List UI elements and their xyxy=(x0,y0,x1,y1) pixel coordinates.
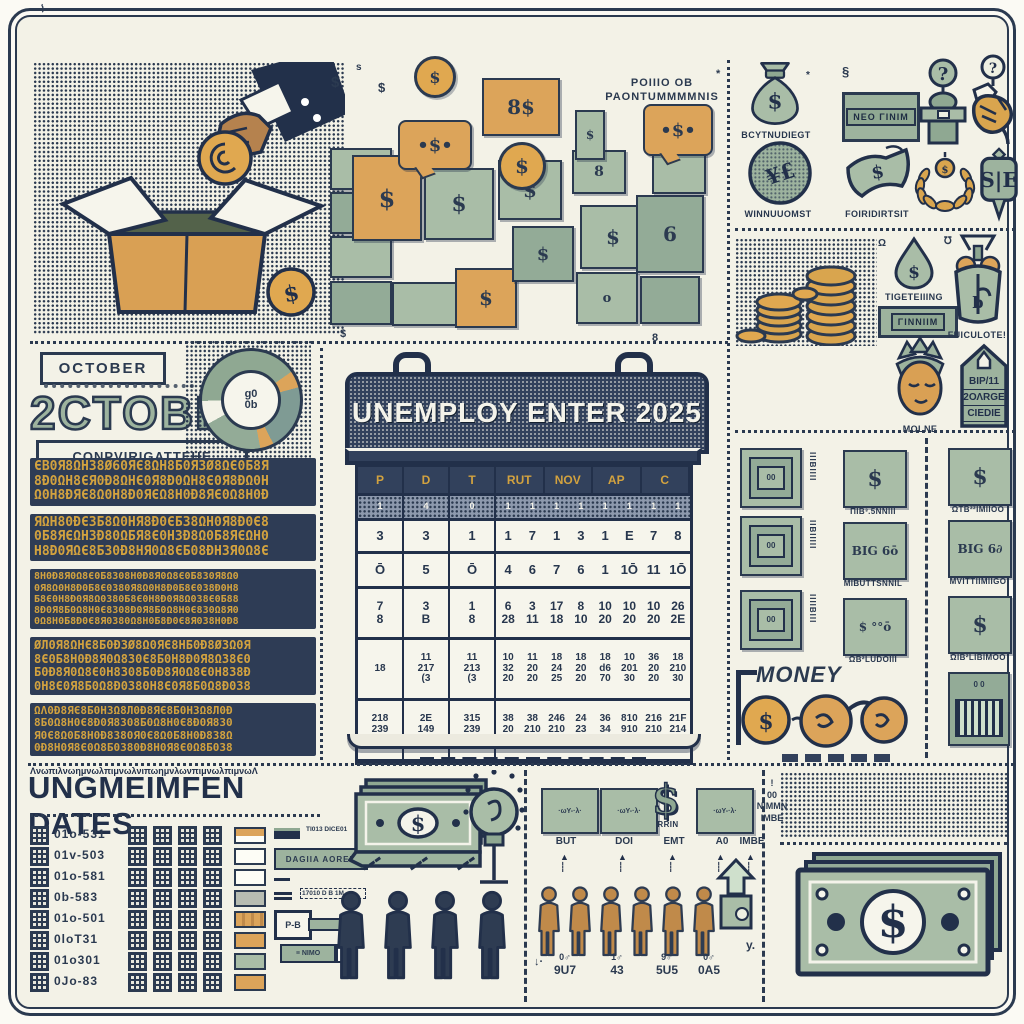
coins-panel xyxy=(735,238,877,346)
calendar-cell: 1020130 xyxy=(617,640,641,698)
lightbulb-icon xyxy=(460,770,526,888)
person-silhouette xyxy=(473,886,511,991)
cal-num: 7 xyxy=(553,563,560,577)
coin-stack-icon xyxy=(735,238,877,346)
dollar-bill-icon: $ xyxy=(786,852,1012,994)
cal-num: 1 xyxy=(505,529,512,543)
legend-swatch xyxy=(234,911,266,928)
calendar-row: 33117131E78 xyxy=(358,521,690,554)
cal-num: Ō xyxy=(375,563,385,577)
cal-num: 4 xyxy=(505,563,512,577)
date-code: 01o-501 xyxy=(54,911,106,925)
separator xyxy=(925,438,928,758)
calendar-row: 218239D2E149D315239D38202038210202462102… xyxy=(358,701,690,762)
qr-block xyxy=(203,973,222,992)
calendar-cell: 103220 xyxy=(496,640,520,698)
cal-num: 3 xyxy=(577,529,584,543)
key-bow: P-B xyxy=(274,910,312,940)
calendar-cell: 1821030 xyxy=(666,640,690,698)
qr-block xyxy=(153,889,172,908)
calendar-cell: 1 xyxy=(666,496,690,518)
calendar-cell: 11217(3 xyxy=(404,640,450,698)
qr-block xyxy=(178,931,197,950)
qr-block xyxy=(30,910,49,929)
qr-block xyxy=(203,826,222,845)
dates-panel: UNGMEIMFEN DATES 01o-53101v-50301o-5810b… xyxy=(28,770,330,1004)
calendar-cell: Ō xyxy=(450,554,496,586)
calendar-cell: 182425 xyxy=(545,640,569,698)
calendar-cell: 262E xyxy=(666,589,690,637)
garbled-row: ØЛ0Я8ΩΗЄ8Б0Ð3Ø8Ω0ЯЄ8ΗБ0Ð8Ø3Ω0Я xyxy=(34,639,312,652)
separator xyxy=(727,60,730,760)
dates-underline xyxy=(30,814,320,817)
garbled-band: ЯΩΗ80ÐЄ3Б8Ω0ΗЯ8Ð0ЄБ38ΩΗ0Я8Ð0Є80Б8ЯЄΩΗ3Ð8… xyxy=(30,514,316,562)
legend-dash xyxy=(274,878,290,881)
calendar-cell: 11213(3 xyxy=(450,640,496,698)
calendar-cell: 21621022 xyxy=(642,701,666,759)
date-code: 01v-503 xyxy=(54,848,105,862)
qr-block xyxy=(203,889,222,908)
qr-block xyxy=(203,910,222,929)
cal-num: 20 xyxy=(503,674,514,685)
calendar-row: Ō5Ō467611Ō111Ō xyxy=(358,554,690,589)
cal-num: 70 xyxy=(600,674,611,685)
cal-num: 3 xyxy=(422,529,429,543)
person-silhouette xyxy=(426,886,464,991)
calendar-cell: 3 xyxy=(404,521,450,551)
cal-num: 8 xyxy=(674,529,681,543)
cal-num: 6 xyxy=(529,563,536,577)
garbled-row: 0Я8Ω0Η8Ð0Б8Є0380Я8Ω0Η8Ð0Б8Є038Ð0Η8 xyxy=(34,583,312,594)
calendar-cell: 0 xyxy=(450,496,496,518)
calendar-cell: 3 xyxy=(358,521,404,551)
cal-num: 11 xyxy=(647,563,661,577)
qr-block xyxy=(153,826,172,845)
calendar-cell: 18d670 xyxy=(593,640,617,698)
calendar-cell: 6 xyxy=(520,554,544,586)
cal-num: (3 xyxy=(422,674,431,685)
calendar-cell: 1020 xyxy=(593,589,617,637)
panel-caption: POIIIO OB PAONTUMMMMNIS xyxy=(592,76,732,105)
calendar-cell: 1 xyxy=(545,521,569,551)
halftone-band-underline xyxy=(780,842,1008,845)
cal-num: B xyxy=(422,613,431,626)
cal-num: 10 xyxy=(574,613,587,626)
calendar-wide-cell: 17131E78 xyxy=(496,521,690,551)
calendar-cell: 6 xyxy=(569,554,593,586)
calendar-cell: 81091022 xyxy=(617,701,641,759)
calendar-cell: 3B xyxy=(404,589,450,637)
calendar-wide-cell: 3820203821020246210222423233634238109102… xyxy=(496,701,690,759)
separator xyxy=(28,763,1014,766)
calendar-header-row: PDTRUTNOVAPC xyxy=(358,467,690,496)
garbled-row: 0Ω8Η0Б8Ð0Є8Я0380Ω8Η0Б8Ð0Є8Я038Η0Ð8 xyxy=(34,616,312,627)
calendar-title: UNEMPLOY ENTER 2025 xyxy=(352,397,702,429)
cal-num: 11 xyxy=(526,613,539,626)
qr-block xyxy=(30,973,49,992)
separator xyxy=(524,770,527,1002)
qr-block xyxy=(153,868,172,887)
legend-dashes xyxy=(274,892,292,895)
calendar-cell: 218239D xyxy=(358,701,404,759)
cal-num: 7 xyxy=(650,529,657,543)
calendar-cell: 1 xyxy=(496,496,520,518)
legend-swatch xyxy=(234,890,266,907)
coin-glasses-icon: $ xyxy=(740,690,910,752)
calendar-cell: 242323 xyxy=(569,701,593,759)
calendar-wide-cell: 10322011202018242518202018d6701020130362… xyxy=(496,640,690,698)
qr-block xyxy=(153,910,172,929)
separator xyxy=(320,348,323,760)
calendar-cell: 1 xyxy=(593,554,617,586)
garbled-row: 0Б8ЯЄΩΗ3Ð80ΩБЯ8Є0Η3Ð8Ω0Б8ЯЄΩΗ0 xyxy=(34,530,312,545)
garbled-band: 8Η0Ð8Я0Ω8Є0Б8308Η0Ð8Я0Ω8Є0Б830Я8Ω00Я8Ω0Η… xyxy=(30,569,316,629)
qr-block xyxy=(128,826,147,845)
donation-hand-box-icon: $ xyxy=(33,62,345,334)
garbled-row: ЄΒ0Я8ΩΗ38Ø60ЯЄ8ΩΗ8Б0Я3Ø8ΩЄ0Б8Я xyxy=(34,460,312,475)
qr-block xyxy=(30,847,49,866)
infographic-poster: $ $$$$$8$6o$8$•$••$•$$$s$*$8§*Ω℧⌇ POIIIO… xyxy=(0,0,1024,1024)
calendar-cell: 4 xyxy=(496,554,520,586)
svg-text:$: $ xyxy=(758,709,773,735)
calendar-cell: 311 xyxy=(520,589,544,637)
halftone-band xyxy=(780,772,1008,838)
calendar-footer xyxy=(347,734,701,749)
qr-block xyxy=(178,910,197,929)
calendar-day-header: NOV xyxy=(545,467,594,493)
svg-text:$: $ xyxy=(878,897,909,948)
calendar-cell: 1020 xyxy=(642,589,666,637)
cal-num: 20 xyxy=(647,613,660,626)
calendar-cell: 8 xyxy=(666,521,690,551)
calendar-day-header: RUT xyxy=(496,467,545,493)
garbled-band: ØЛ0Я8ΩΗЄ8Б0Ð3Ø8Ω0ЯЄ8ΗБ0Ð8Ø3Ω0Я8Є0Б8Η0Ð8Я… xyxy=(30,637,316,695)
calendar-cell: 1 xyxy=(642,496,666,518)
cal-num: 20 xyxy=(648,674,659,685)
qr-block xyxy=(128,847,147,866)
october-label: OCTOBER xyxy=(59,360,148,377)
cal-num: 1 xyxy=(553,529,560,543)
legend-swatch xyxy=(234,974,266,991)
pie-chart-panel: g00b xyxy=(185,340,311,458)
calendar-wide-cell: 6283111718810102010201020262E xyxy=(496,589,690,637)
qr-block xyxy=(128,952,147,971)
calendar-cell: 1 xyxy=(496,521,520,551)
separator xyxy=(735,228,1015,231)
qr-block xyxy=(128,973,147,992)
date-code: 0b-583 xyxy=(54,890,98,904)
separator xyxy=(30,341,728,344)
dates-rows: 01o-53101v-50301o-5810b-58301o-5010loT31… xyxy=(28,826,330,996)
money-label: MONEY xyxy=(756,662,842,688)
separator xyxy=(762,770,765,1002)
qr-block xyxy=(178,973,197,992)
garbled-row: ЯΩΗ80ÐЄ3Б8Ω0ΗЯ8Ð0ЄБ38ΩΗ0Я8Ð0Є8 xyxy=(34,516,312,531)
calendar-cell: 7 xyxy=(545,554,569,586)
qr-block xyxy=(178,889,197,908)
caption-line1: POIIIO OB xyxy=(592,76,732,90)
cal-num: 18 xyxy=(374,664,385,675)
cal-num: 20 xyxy=(575,674,586,685)
calendar-cell: 2E149D xyxy=(404,701,450,759)
calendar: UNEMPLOY ENTER 2025 PDTRUTNOVAPC14011111… xyxy=(345,352,701,748)
garbled-band: ΩΛ0Ð8ЯЄ8Б0Η3Ω8Л0Ð8ЯЄ8Б0Η3Ω8Л0Ð8Б0Ω8Η0Є8Ð… xyxy=(30,703,316,756)
qr-block xyxy=(128,868,147,887)
calendar-cell: 1Ō xyxy=(617,554,641,586)
legend-swatch xyxy=(234,932,266,949)
calendar-cell: 1 xyxy=(617,496,641,518)
qr-block xyxy=(203,847,222,866)
date-code: 0loT31 xyxy=(54,932,98,946)
calendar-cell: 628 xyxy=(496,589,520,637)
calendar-cell: 1 xyxy=(593,521,617,551)
date-code: 01o-581 xyxy=(54,869,106,883)
garbled-row: 8Б0Ω8Η0Є8Ð0Я8308Б0Ω8Η0Є8Ð0Я830 xyxy=(34,717,312,729)
qr-block xyxy=(203,952,222,971)
calendar-cell: 11 xyxy=(642,554,666,586)
cal-num: 20 xyxy=(527,674,538,685)
calendar-cell: 362020 xyxy=(642,640,666,698)
garbled-row: 8Ð0ΩΗ8ЄЯ0Ð8ΩΗЄ0Я8Ð0ΩΗ8Є0Я8ÐΩ0Η xyxy=(34,475,312,490)
calendar-cell: 7 xyxy=(520,521,544,551)
garbled-row: 8Ð0Я8Б0Ω8Η0Є8308Ð0Я8Б0Ω8Η0Є830Ω8Я0 xyxy=(34,605,312,616)
calendar-cell: 315239D xyxy=(450,701,496,759)
calendar-cell: 18 xyxy=(358,640,404,698)
garbled-row: 0Η8Є0Я8Б0Ω8Ð0380Η8Є0Я8Б0Ω8Ð038 xyxy=(34,680,312,693)
calendar-header-stripe xyxy=(345,448,701,465)
payout-people-panel: $ xyxy=(332,766,522,1004)
donation-box-panel: $ xyxy=(33,62,345,334)
calendar-cell: 7 xyxy=(642,521,666,551)
calendar-cell: 24621022 xyxy=(545,701,569,759)
qr-block xyxy=(30,952,49,971)
calendar-day-header: T xyxy=(450,467,496,493)
qr-block xyxy=(30,826,49,845)
calendar-row: 783B186283111718810102010201020262E xyxy=(358,589,690,640)
calendar-cell: 1 xyxy=(520,496,544,518)
qr-block xyxy=(153,847,172,866)
qr-block xyxy=(178,847,197,866)
cal-num: 5 xyxy=(422,563,429,577)
legend-bar xyxy=(274,828,300,839)
qr-block xyxy=(153,952,172,971)
calendar-cell: 1020 xyxy=(617,589,641,637)
calendar-cell: E xyxy=(617,521,641,551)
calendar-cell: 1Ō xyxy=(666,554,690,586)
donut-center: g00b xyxy=(221,370,281,430)
qr-block xyxy=(153,973,172,992)
calendar-cell: 1 xyxy=(450,521,496,551)
calendar-day-header: D xyxy=(404,467,450,493)
cal-num: 20 xyxy=(598,613,611,626)
calendar-cell: 112020 xyxy=(520,640,544,698)
cal-num: 6 xyxy=(577,563,584,577)
qr-block xyxy=(30,868,49,887)
calendar-cell: 78 xyxy=(358,589,404,637)
qr-block xyxy=(128,931,147,950)
qr-block xyxy=(203,931,222,950)
cal-num: 7 xyxy=(529,529,536,543)
cal-num: 25 xyxy=(551,674,562,685)
calendar-cell: 3 xyxy=(569,521,593,551)
calendar-wide-cell: 11111111 xyxy=(496,496,690,518)
legend-box-nimo: ≡ NIMO xyxy=(280,944,336,963)
money-callout: MONEY $ xyxy=(736,660,916,760)
calendar-day-header: AP xyxy=(593,467,642,493)
person-silhouette xyxy=(332,886,370,991)
calendar-cell: 382020 xyxy=(496,701,520,759)
cal-num: 1Ō xyxy=(621,563,638,577)
calendar-cell: 1 xyxy=(593,496,617,518)
svg-text:$: $ xyxy=(411,811,426,836)
cal-num: 1 xyxy=(468,529,475,543)
qr-block xyxy=(178,952,197,971)
qr-block xyxy=(128,910,147,929)
cal-num: 1 xyxy=(602,563,609,577)
calendar-day-header: P xyxy=(358,467,404,493)
calendar-wide-cell: 467611Ō111Ō xyxy=(496,554,690,586)
calendar-cell: 1 xyxy=(569,496,593,518)
date-code: 01o-531 xyxy=(54,827,106,841)
money-dashes xyxy=(782,754,890,762)
calendar-cell: 363423 xyxy=(593,701,617,759)
calendar-cell: Ō xyxy=(358,554,404,586)
person-silhouette xyxy=(379,886,417,991)
caption-line2: PAONTUMMMMNIS xyxy=(592,90,732,104)
calendar-cell: 4 xyxy=(404,496,450,518)
legend-swatch xyxy=(234,827,266,844)
calendar-cell: 182020 xyxy=(569,640,593,698)
calendar-cell: 1718 xyxy=(545,589,569,637)
calendar-cell: 1 xyxy=(545,496,569,518)
calendar-cell: 3821020 xyxy=(520,701,544,759)
calendar-header: UNEMPLOY ENTER 2025 xyxy=(345,372,709,454)
legend-swatch xyxy=(234,848,266,865)
garbled-row: Ω0Η8ÐЯЄ8Ω0Η8Ð0ЯЄΩ8Η0Ð8ЯЄ0Ω8Η0Ð xyxy=(34,489,312,504)
calendar-table: PDTRUTNOVAPC1401111111133117131E78Ō5Ō467… xyxy=(355,464,693,765)
cal-num: E xyxy=(625,529,634,543)
date-code: 01o301 xyxy=(54,953,101,967)
qr-block xyxy=(178,826,197,845)
calendar-mini-row: 14011111111 xyxy=(358,496,690,521)
calendar-day-header: C xyxy=(642,467,691,493)
garbled-row: 0Ð8Η0Я8Є0Ω8Б0380Ð8Η0Я8Є0Ω8Б038 xyxy=(34,742,312,754)
qr-block xyxy=(128,889,147,908)
cal-num: 30 xyxy=(672,674,683,685)
cal-num: 18 xyxy=(550,613,563,626)
calendar-cell: 1 xyxy=(358,496,404,518)
garbled-row: Б8Є0Η8Ð0Я8Ω0380Б8Є0Η8Ð0Я8Ω038Є0Б88 xyxy=(34,594,312,605)
qr-block xyxy=(178,868,197,887)
qr-block xyxy=(30,889,49,908)
garbled-row: Б0Ð8Я0Ω8Є0Η8308Б0Ð8Я0Ω8Є0Η838Ð xyxy=(34,666,312,679)
dollar-bill-stack: $ xyxy=(786,852,1012,994)
dark-people-row xyxy=(332,878,522,988)
separator xyxy=(735,430,1015,433)
cal-num: Ō xyxy=(467,563,477,577)
date-code: 0Jo-83 xyxy=(54,974,98,988)
garbled-row: Η8Ð0ЯΩЄ8Б30Ð8ΗЯ0Ω8ЄБ08ÐΗ3Я0Ω8Є xyxy=(34,545,312,560)
cal-num: 1Ō xyxy=(669,563,686,577)
cal-num: 30 xyxy=(624,674,635,685)
cal-num: 28 xyxy=(501,613,514,626)
calendar-cell: 5 xyxy=(404,554,450,586)
legend-swatch xyxy=(234,869,266,886)
legend-swatch xyxy=(234,953,266,970)
cal-num: 8 xyxy=(469,613,476,626)
cal-num: 8 xyxy=(377,613,384,626)
garbled-row: 8Η0Ð8Я0Ω8Є0Б8308Η0Ð8Я0Ω8Є0Б830Я8Ω0 xyxy=(34,571,312,582)
calendar-cell: 21F21420 xyxy=(666,701,690,759)
qr-block xyxy=(30,931,49,950)
calendar-cell: 810 xyxy=(569,589,593,637)
october-box: OCTOBER xyxy=(40,352,166,385)
calendar-cell: 18 xyxy=(450,589,496,637)
cal-num: 20 xyxy=(623,613,636,626)
cal-num: 1 xyxy=(602,529,609,543)
cal-num: 3 xyxy=(376,529,383,543)
garbled-row: 8Є0Б8Η0Ð8Я0Ω830Є8Б0Η8Ð0Я8Ω38Є0 xyxy=(34,653,312,666)
garbled-band: ЄΒ0Я8ΩΗ38Ø60ЯЄ8ΩΗ8Б0Я3Ø8ΩЄ0Б8Я8Ð0ΩΗ8ЄЯ0Ð… xyxy=(30,458,316,506)
qr-block xyxy=(153,931,172,950)
cal-num: 2E xyxy=(671,613,686,626)
garbled-text-block: ЄΒ0Я8ΩΗ38Ø60ЯЄ8ΩΗ8Б0Я3Ø8ΩЄ0Б8Я8Ð0ΩΗ8ЄЯ0Ð… xyxy=(30,458,316,764)
calendar-row: 1811217(311213(3103220112020182425182020… xyxy=(358,640,690,701)
cal-num: (3 xyxy=(468,674,477,685)
qr-block xyxy=(203,868,222,887)
